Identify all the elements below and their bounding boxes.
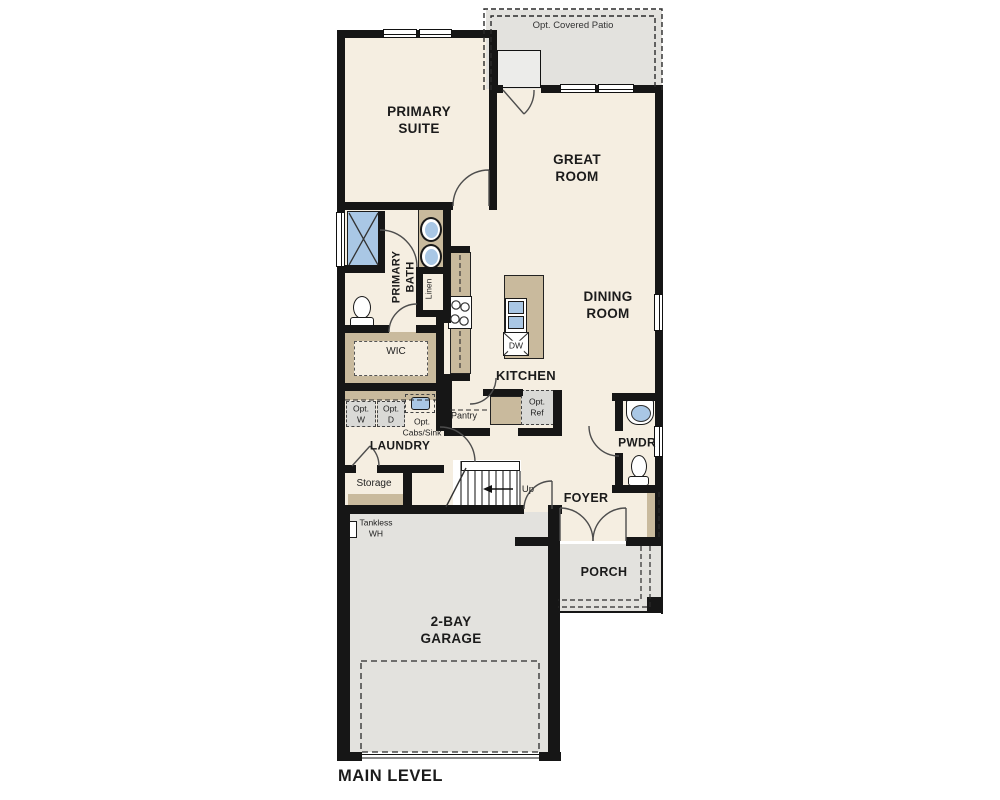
wall (337, 505, 350, 761)
pwdr-sink (626, 400, 654, 425)
wall (444, 380, 452, 436)
wall (337, 752, 362, 761)
wall (483, 389, 523, 396)
patio-label: Opt. Covered Patio (533, 20, 614, 32)
primary-bath-label: PRIMARY BATH (390, 251, 418, 303)
laundry-opt-sink (411, 397, 430, 410)
wall (518, 428, 562, 436)
storage-label: Storage (356, 478, 391, 491)
wall (489, 85, 503, 93)
garage-door (362, 752, 539, 761)
window (560, 84, 596, 93)
plan-title: MAIN LEVEL (338, 766, 443, 787)
pwdr-sink-basin (631, 405, 651, 422)
wall (337, 505, 524, 514)
wall (337, 383, 444, 391)
wall (615, 393, 623, 431)
pantry-label: Pantry (451, 410, 477, 421)
wall (436, 317, 444, 391)
bath-toilet-bowl (353, 296, 371, 319)
opt-ref-label: Opt. Ref (529, 396, 545, 417)
stair-landing (461, 461, 520, 471)
dishwasher-label: DW (508, 341, 524, 352)
wall (612, 485, 663, 493)
vanity-sink-2 (420, 244, 442, 269)
stairs-up-label: Up (522, 484, 534, 496)
wall (444, 246, 470, 253)
floor-plan: Opt. Covered Patio PRIMARY SUITE GREAT R… (0, 0, 1000, 800)
window (336, 212, 345, 267)
wall (378, 211, 385, 267)
island-sink-basin-1 (508, 301, 524, 314)
patio-step-pad (497, 50, 541, 88)
porch-edge (661, 544, 663, 614)
linen-label: Linen (424, 279, 435, 300)
wall (626, 537, 663, 546)
wall (553, 390, 562, 430)
wall (337, 30, 497, 38)
pwdr-toilet-bowl (631, 455, 647, 478)
island-sink-basin-2 (508, 316, 524, 329)
porch-label: PORCH (581, 565, 628, 581)
kitchen-label: KITCHEN (496, 368, 556, 384)
window (419, 29, 452, 38)
window (383, 29, 417, 38)
vanity-sink-1-basin (425, 222, 438, 238)
window (598, 84, 634, 93)
opt-washer-label: Opt. W (353, 403, 369, 424)
tankless-wh-label: Tankless WH (359, 517, 392, 538)
shower (347, 211, 380, 267)
pwdr-label: PWDR (618, 436, 656, 451)
opt-dryer-label: Opt. D (383, 403, 399, 424)
wic-label: WIC (386, 346, 405, 359)
laundry-label: LAUNDRY (370, 439, 430, 454)
kitchen-lower-counter (490, 396, 522, 425)
wall (337, 325, 389, 333)
foyer-label: FOYER (564, 491, 609, 507)
wall (403, 470, 412, 510)
opt-cabs-sink-label: Opt. Cabs/Sink (403, 416, 442, 437)
range (448, 296, 472, 329)
garage-label: 2-BAY GARAGE (420, 614, 481, 648)
vanity-sink-1 (420, 217, 442, 242)
wall (443, 202, 451, 323)
wall (344, 465, 356, 473)
primary-suite-label: PRIMARY SUITE (387, 104, 451, 138)
vanity-sink-2-basin (425, 249, 438, 265)
wall (489, 30, 497, 210)
window (654, 294, 663, 331)
wall (337, 202, 453, 210)
great-room-label: GREAT ROOM (553, 152, 601, 186)
dining-room-label: DINING ROOM (583, 289, 632, 323)
porch-column (647, 597, 661, 611)
wall (539, 752, 561, 761)
wall (548, 505, 560, 760)
porch-edge (558, 611, 663, 613)
